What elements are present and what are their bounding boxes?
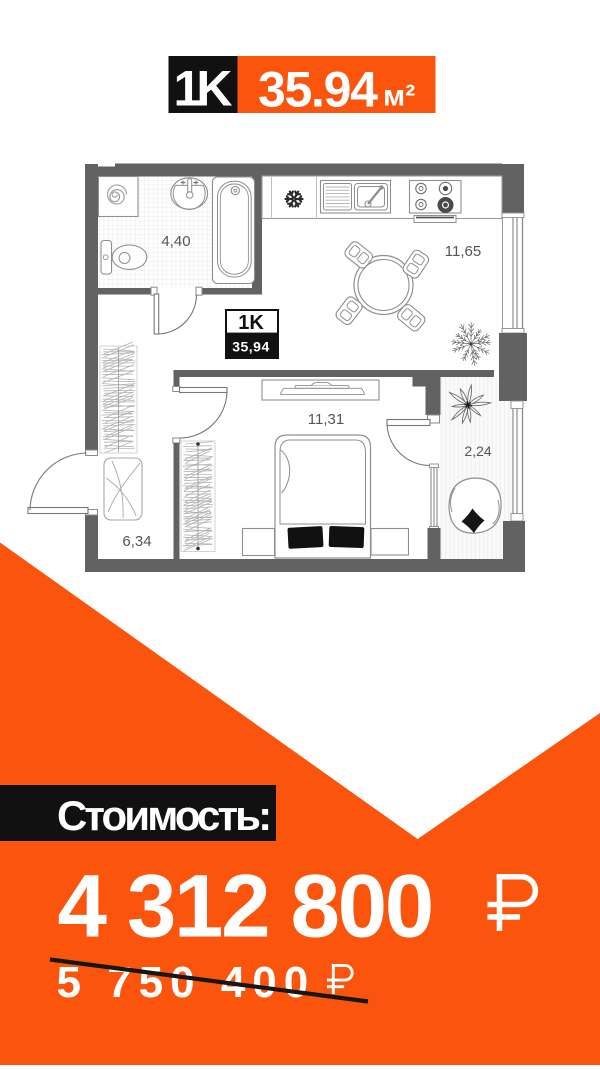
svg-text:2,24: 2,24: [464, 443, 491, 459]
svg-text:11,31: 11,31: [308, 411, 344, 428]
svg-text:11,65: 11,65: [445, 243, 481, 260]
svg-text:1K: 1K: [238, 312, 264, 334]
svg-text:4 312 800: 4 312 800: [58, 856, 432, 956]
svg-text:м²: м²: [383, 80, 415, 113]
svg-text:Стоимость:: Стоимость:: [57, 792, 269, 839]
svg-text:35,94: 35,94: [232, 339, 270, 355]
svg-text:35.94: 35.94: [258, 62, 378, 118]
svg-text:6,34: 6,34: [122, 533, 151, 550]
svg-text:1K: 1K: [174, 61, 233, 117]
svg-text:4,40: 4,40: [161, 233, 190, 250]
